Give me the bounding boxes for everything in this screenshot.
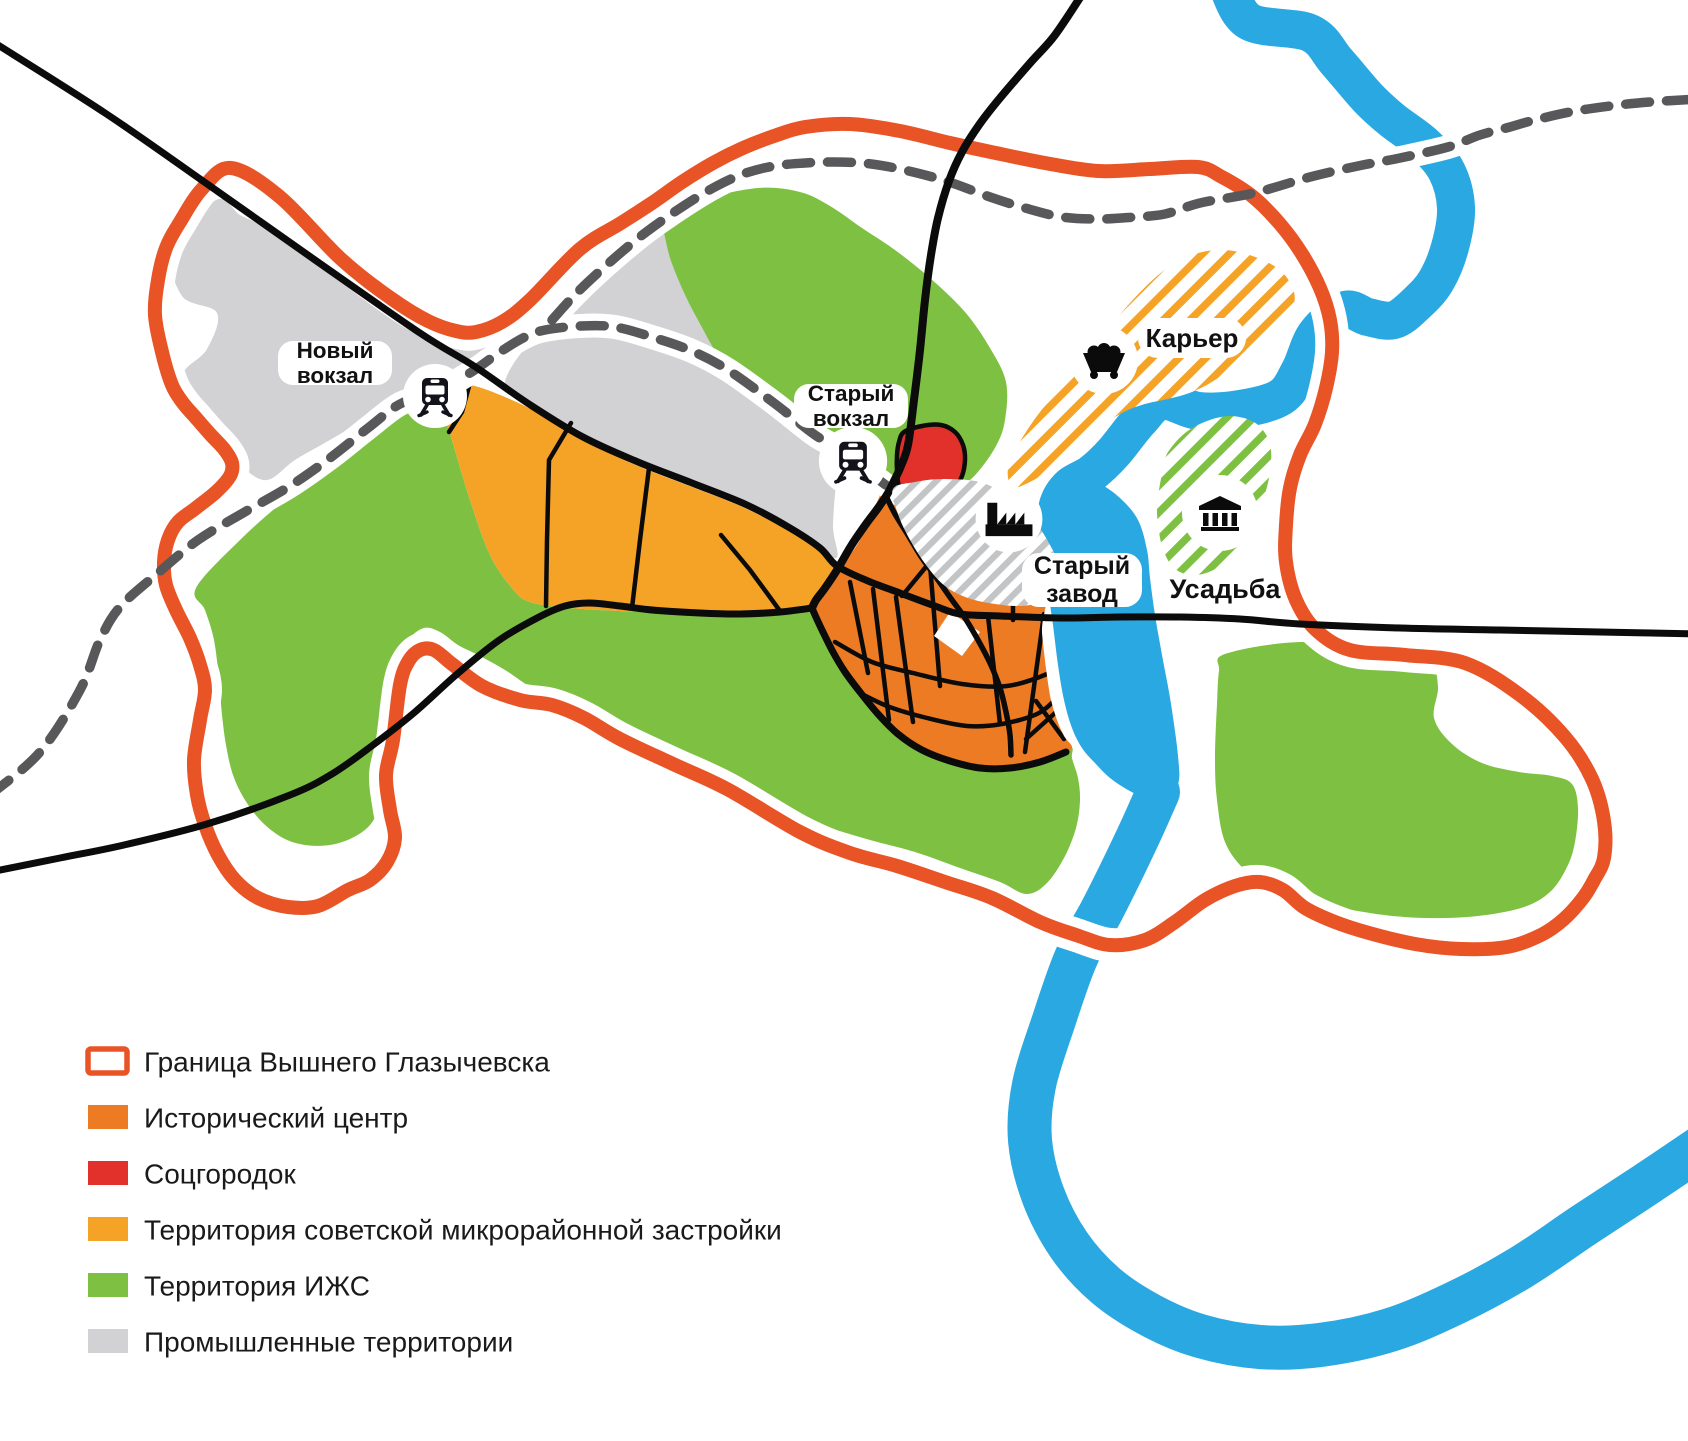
svg-text:Промышленные территории: Промышленные территории bbox=[144, 1327, 513, 1358]
svg-text:Карьер: Карьер bbox=[1146, 323, 1239, 353]
svg-text:Старый: Старый bbox=[1034, 552, 1130, 580]
svg-text:Территория ИЖС: Территория ИЖС bbox=[144, 1271, 370, 1302]
svg-text:завод: завод bbox=[1046, 580, 1118, 608]
svg-text:Граница Вышнего Глазычевска: Граница Вышнего Глазычевска bbox=[144, 1047, 550, 1078]
svg-text:Соцгородок: Соцгородок bbox=[144, 1159, 296, 1190]
svg-text:Территория советской микрорайо: Территория советской микрорайонной застр… bbox=[144, 1215, 782, 1246]
svg-text:вокзал: вокзал bbox=[297, 363, 373, 388]
svg-text:Новый: Новый bbox=[297, 338, 374, 363]
svg-text:Старый: Старый bbox=[808, 381, 895, 406]
svg-text:Исторический центр: Исторический центр bbox=[144, 1103, 408, 1134]
svg-text:Усадьба: Усадьба bbox=[1170, 574, 1282, 604]
